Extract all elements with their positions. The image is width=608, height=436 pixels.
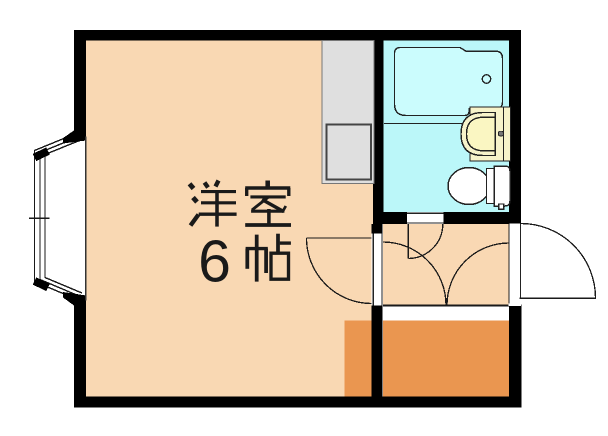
svg-text:6: 6 (198, 229, 231, 295)
